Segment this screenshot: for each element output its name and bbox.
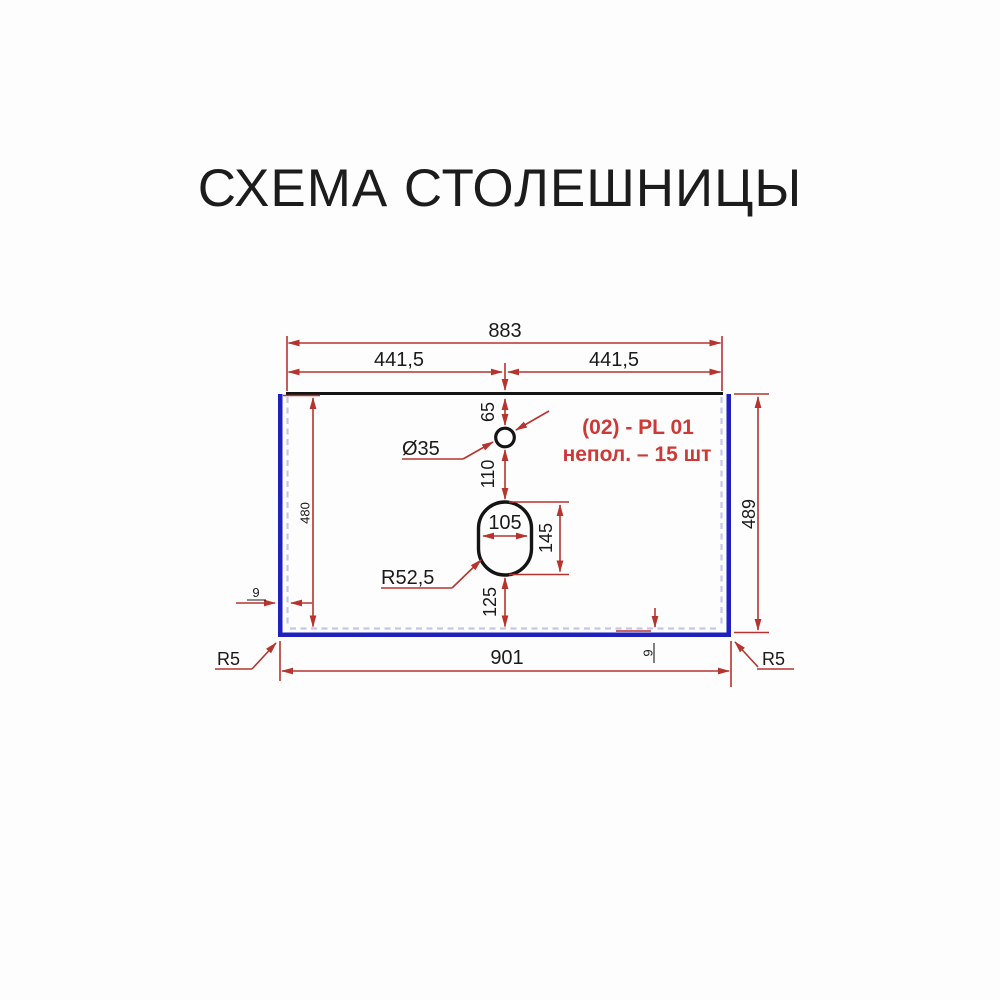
leader-line xyxy=(252,643,276,669)
dim-label-441-5-right: 441,5 xyxy=(589,349,639,371)
dim-corner-radius-right: R5 xyxy=(735,642,794,669)
dim-bottom-width: 901 xyxy=(280,641,731,687)
dim-faucet-to-sink: 110 xyxy=(478,450,505,499)
left-edge-strip xyxy=(278,394,283,637)
right-edge-strip xyxy=(727,394,732,637)
annotation-line1: (02) - PL 01 xyxy=(582,416,694,439)
countertop-drawing: 883 441,5 441,5 65 Ø35 110 105 145 xyxy=(0,0,1000,1000)
leader-line xyxy=(452,560,481,588)
dim-label-489: 489 xyxy=(739,499,759,529)
dim-label-65: 65 xyxy=(478,402,498,422)
dim-half-widths: 441,5 441,5 xyxy=(289,349,721,390)
dim-label-145: 145 xyxy=(536,523,556,553)
annotation-line2: непол. – 15 шт xyxy=(563,443,712,466)
dim-label-9-bottom: 9 xyxy=(641,649,656,656)
faucet-hole xyxy=(496,428,515,447)
dim-sink-width: 105 xyxy=(483,512,527,536)
part-annotation: (02) - PL 01 непол. – 15 шт xyxy=(563,416,712,466)
dim-left-edge-thickness: 9 xyxy=(236,585,312,603)
dim-label-r52-5: R52,5 xyxy=(381,567,434,589)
dim-label-125: 125 xyxy=(480,587,500,617)
leader-line xyxy=(735,642,758,667)
dim-label-441-5-left: 441,5 xyxy=(374,349,424,371)
dim-label-901: 901 xyxy=(490,647,523,669)
dim-sink-to-front: 125 xyxy=(480,578,505,627)
dim-label-r5-left: R5 xyxy=(217,649,240,669)
dim-faucet-diameter: Ø35 xyxy=(402,411,549,460)
bottom-edge-strip xyxy=(278,633,731,638)
dim-label-110: 110 xyxy=(478,460,498,489)
faucet-hole-circle xyxy=(496,428,515,447)
leader-line xyxy=(516,411,549,430)
leader-line xyxy=(463,442,493,459)
dim-label-883: 883 xyxy=(488,320,521,342)
dim-outer-depth: 489 xyxy=(734,394,769,633)
dim-label-480: 480 xyxy=(298,502,313,524)
dim-corner-radius-left: R5 xyxy=(215,643,276,669)
dim-label-9-left: 9 xyxy=(252,585,259,600)
dim-label-105: 105 xyxy=(488,512,521,534)
dim-faucet-offset: 65 xyxy=(478,399,505,425)
dim-label-o35: Ø35 xyxy=(402,438,440,460)
dim-label-r5-right: R5 xyxy=(762,649,785,669)
dim-sink-radius: R52,5 xyxy=(381,560,481,589)
